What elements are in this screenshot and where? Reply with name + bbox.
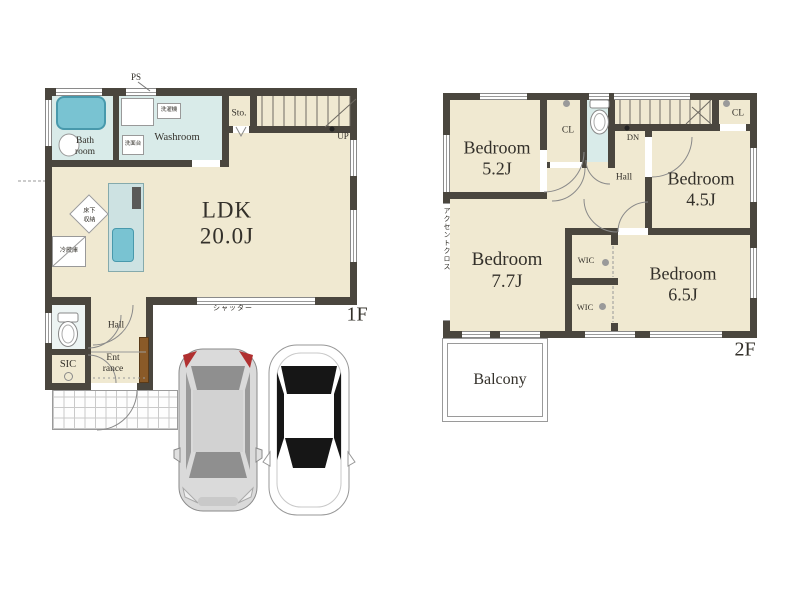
window: [56, 88, 102, 96]
washer-label-box: 洗濯機: [157, 103, 181, 119]
bedroom45-label: Bedroom4.5J: [668, 168, 735, 209]
ldk-name: LDK: [200, 198, 254, 224]
wall-segment: [611, 323, 618, 331]
floor1-label: 1F: [346, 304, 367, 327]
closet2-label: CL: [732, 109, 744, 120]
washroom-label: Washroom: [154, 132, 199, 144]
washing-machine-pan: [121, 98, 154, 126]
bedroom65-label: Bedroom6.5J: [650, 263, 717, 304]
wic1-label: WIC: [578, 256, 595, 266]
door-opening: [192, 160, 220, 167]
bedroom52-name: Bedroom: [464, 137, 531, 158]
entrance-label-line1: Ent: [103, 353, 124, 364]
storage-label: Sto.: [231, 109, 246, 120]
window: [750, 148, 757, 202]
bedroom52-size: 5.2J: [464, 158, 531, 179]
front-door: [139, 337, 149, 383]
kitchen-sink: [112, 228, 134, 262]
window: [45, 100, 52, 146]
entrance-label: Entrance: [103, 353, 124, 375]
balcony-label: Balcony: [473, 371, 526, 389]
ldk-label: LDK20.0J: [200, 198, 254, 251]
vanity-box: 洗面台: [122, 135, 144, 155]
stairs-dn-label: DN: [627, 133, 639, 143]
stairs-up-label: UP: [337, 131, 349, 141]
refrigerator-label: 冷蔵庫: [60, 248, 78, 254]
bedroom45-size: 4.5J: [668, 189, 735, 210]
closet-sliding-door: [720, 124, 746, 131]
floorplan-canvas: 洗濯機 洗面台 冷蔵庫 床下収納 PS Bathroom Washroom St…: [0, 0, 800, 600]
wall-segment: [443, 192, 547, 199]
washer-label: 洗濯機: [161, 108, 178, 114]
window: [589, 93, 609, 100]
bathroom-label: Bathroom: [75, 136, 95, 158]
wic2-label: WIC: [577, 303, 594, 313]
closet-hanger-dot: [599, 303, 606, 310]
floor2-label: 2F: [734, 339, 755, 362]
closet-hanger-dot: [723, 100, 730, 107]
hall1-label: Hall: [108, 321, 124, 332]
hall2-label: Hall: [616, 173, 632, 184]
window: [350, 210, 357, 262]
window: [480, 93, 527, 100]
wall-segment: [350, 88, 357, 305]
bathtub: [56, 96, 106, 130]
closet-hanger-dot: [563, 100, 570, 107]
window: [614, 93, 690, 100]
wall-segment: [611, 235, 618, 245]
door-opening: [540, 150, 547, 192]
toilet1-floor: [50, 305, 85, 349]
sic-label: SIC: [60, 359, 76, 371]
window: [443, 135, 450, 192]
balcony-door: [500, 331, 540, 338]
entrance-label-line2: rance: [103, 364, 124, 375]
window: [650, 331, 722, 338]
bedroom45-name: Bedroom: [668, 168, 735, 189]
window: [585, 331, 635, 338]
bedroom77-size: 7.7J: [472, 271, 543, 293]
window: [45, 313, 52, 343]
wall-segment: [222, 88, 229, 167]
cooktop: [132, 187, 141, 209]
shutter-label: シャッター: [213, 304, 253, 312]
bedroom77-label: Bedroom7.7J: [472, 249, 543, 293]
door-opening: [233, 126, 249, 133]
bedroom52-label: Bedroom5.2J: [464, 137, 531, 178]
ps-label: PS: [131, 72, 141, 82]
sic-circle: [64, 372, 73, 381]
entrance-porch: [52, 390, 178, 430]
balcony-door: [462, 331, 490, 338]
accent-wall-label: アクセントクロス: [442, 207, 452, 319]
bedroom65-name: Bedroom: [650, 263, 717, 284]
wall-segment: [85, 305, 91, 349]
wall-segment: [565, 228, 757, 235]
car-silver: [174, 349, 262, 511]
bedroom65-size: 6.5J: [650, 284, 717, 305]
closet1-label: CL: [562, 126, 574, 137]
window: [750, 248, 757, 298]
bathroom-label-line1: Bath: [75, 136, 95, 147]
wall-segment: [580, 93, 587, 168]
wall-segment: [712, 93, 719, 131]
ldk-size: 20.0J: [200, 224, 254, 250]
vanity-label: 洗面台: [125, 142, 142, 148]
ps-shaft: [126, 88, 156, 96]
door-opening: [91, 383, 137, 390]
bedroom77-name: Bedroom: [472, 249, 543, 271]
door-opening: [550, 162, 582, 168]
wall-segment: [113, 88, 119, 167]
car-white: [263, 345, 355, 515]
wall-segment: [45, 297, 91, 305]
refrigerator-box: 冷蔵庫: [52, 236, 86, 267]
underfloor-storage-label: 床下収納: [82, 205, 97, 223]
closet-hanger-dot: [602, 259, 609, 266]
door-opening: [645, 137, 652, 177]
wall-segment: [565, 278, 618, 285]
bathroom-label-line2: room: [75, 147, 95, 158]
window: [350, 140, 357, 176]
door-opening: [618, 228, 648, 235]
